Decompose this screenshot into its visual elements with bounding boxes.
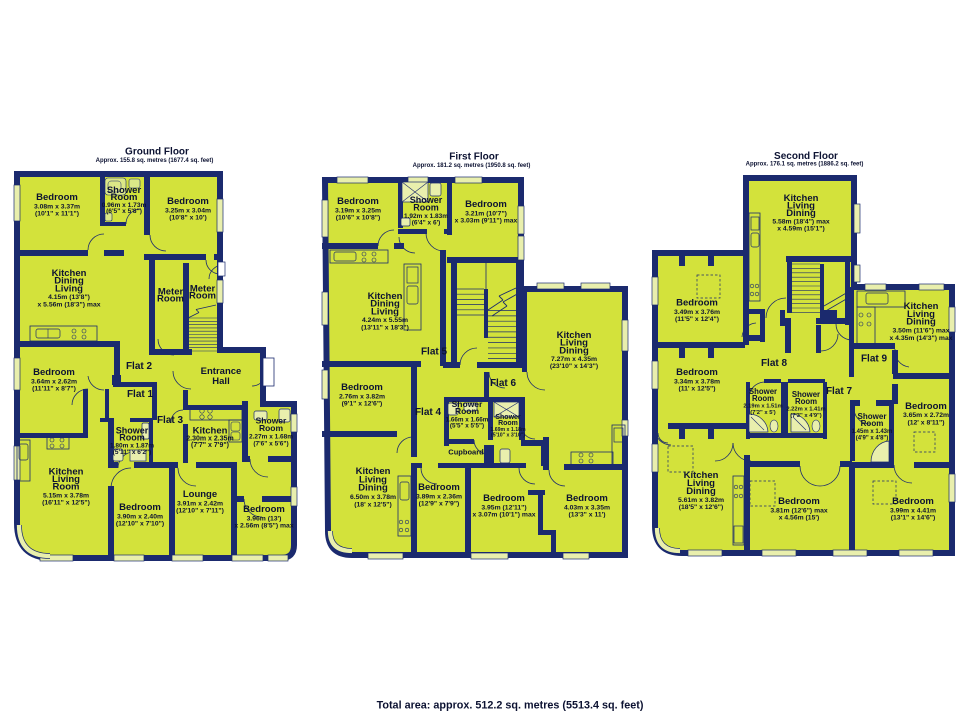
svg-text:Room: Room bbox=[157, 294, 184, 305]
svg-text:1.45m x 1.43m: 1.45m x 1.43m bbox=[852, 429, 893, 435]
svg-text:Room: Room bbox=[498, 420, 518, 427]
svg-text:Flat 7: Flat 7 bbox=[826, 386, 853, 397]
svg-text:(12'10" x 7'10"): (12'10" x 7'10") bbox=[116, 521, 164, 528]
svg-text:3.89m x 2.36m: 3.89m x 2.36m bbox=[416, 493, 462, 500]
svg-text:3.96m (13'): 3.96m (13') bbox=[247, 515, 282, 522]
svg-text:3.91m x 2.42m: 3.91m x 2.42m bbox=[177, 500, 223, 507]
svg-text:(7'6" x 5'6"): (7'6" x 5'6") bbox=[253, 441, 288, 448]
svg-text:Bedroom: Bedroom bbox=[341, 382, 383, 393]
svg-text:(23'10" x 14'3"): (23'10" x 14'3") bbox=[550, 363, 598, 370]
svg-text:(10'6" x 10'8"): (10'6" x 10'8") bbox=[336, 215, 380, 222]
svg-text:(5'5" x 5'5"): (5'5" x 5'5") bbox=[450, 423, 484, 430]
svg-text:3.21m (10'7"): 3.21m (10'7") bbox=[465, 210, 507, 217]
svg-text:Bedroom: Bedroom bbox=[36, 192, 78, 203]
svg-text:Dining: Dining bbox=[906, 317, 936, 328]
svg-text:(11' x 12'5"): (11' x 12'5") bbox=[678, 386, 715, 393]
svg-text:(12' x 8'11"): (12' x 8'11") bbox=[907, 420, 944, 427]
svg-text:Bedroom: Bedroom bbox=[119, 502, 161, 513]
svg-text:Living: Living bbox=[371, 306, 399, 317]
svg-text:Dining: Dining bbox=[358, 483, 388, 494]
svg-text:Total area: approx. 512.2 sq.: Total area: approx. 512.2 sq. metres (55… bbox=[377, 700, 644, 712]
svg-text:4.15m (13'8"): 4.15m (13'8") bbox=[48, 294, 90, 301]
svg-text:Flat 5: Flat 5 bbox=[421, 347, 448, 358]
svg-text:Approx. 181.2 sq. metres (1950: Approx. 181.2 sq. metres (1950.8 sq. fee… bbox=[413, 163, 531, 169]
svg-text:2.22m x 1.41m: 2.22m x 1.41m bbox=[786, 407, 825, 413]
svg-text:Flat 2: Flat 2 bbox=[126, 361, 153, 372]
svg-text:Room: Room bbox=[455, 406, 480, 416]
svg-text:Cupboard: Cupboard bbox=[448, 448, 484, 457]
svg-text:Bedroom: Bedroom bbox=[483, 493, 525, 504]
svg-text:3.99m x 4.41m: 3.99m x 4.41m bbox=[890, 507, 936, 514]
svg-text:3.64m x 2.62m: 3.64m x 2.62m bbox=[31, 378, 77, 385]
svg-text:(10'1" x 11'1"): (10'1" x 11'1") bbox=[35, 211, 79, 218]
svg-text:(12'9" x 7'9"): (12'9" x 7'9") bbox=[419, 501, 460, 508]
svg-text:3.50m (11'6") max: 3.50m (11'6") max bbox=[893, 327, 950, 334]
svg-text:x 2.56m (8'5") max: x 2.56m (8'5") max bbox=[234, 523, 293, 530]
svg-text:Bedroom: Bedroom bbox=[418, 482, 460, 493]
svg-text:(5'11" x 6'2"): (5'11" x 6'2") bbox=[113, 449, 152, 456]
svg-text:Bedroom: Bedroom bbox=[337, 196, 379, 207]
svg-text:(7'3" x 4'9"): (7'3" x 4'9") bbox=[790, 413, 822, 419]
svg-text:Living: Living bbox=[55, 283, 83, 294]
svg-text:(13'3" x 11'): (13'3" x 11') bbox=[568, 512, 605, 519]
svg-text:x 4.59m (15'1"): x 4.59m (15'1") bbox=[777, 226, 825, 233]
svg-text:6.50m x 3.78m: 6.50m x 3.78m bbox=[350, 494, 396, 501]
svg-text:Approx. 176.1 sq. metres (1886: Approx. 176.1 sq. metres (1886.2 sq. fee… bbox=[746, 162, 864, 168]
svg-text:2.76m x 3.82m: 2.76m x 3.82m bbox=[339, 393, 385, 400]
svg-text:3.95m (12'11"): 3.95m (12'11") bbox=[481, 504, 526, 511]
svg-text:(5'10" x 3'10"): (5'10" x 3'10") bbox=[491, 432, 525, 438]
svg-text:(10'8" x 10'): (10'8" x 10') bbox=[169, 215, 206, 222]
svg-text:3.90m x 2.40m: 3.90m x 2.40m bbox=[117, 513, 163, 520]
svg-text:Bedroom: Bedroom bbox=[892, 496, 934, 507]
svg-text:3.08m x 3.37m: 3.08m x 3.37m bbox=[34, 203, 80, 210]
svg-text:x 5.56m (18'3") max: x 5.56m (18'3") max bbox=[37, 301, 100, 308]
svg-text:5.15m x 3.78m: 5.15m x 3.78m bbox=[43, 492, 89, 499]
svg-text:Bedroom: Bedroom bbox=[566, 493, 608, 504]
svg-text:Bedroom: Bedroom bbox=[167, 196, 209, 207]
svg-text:Second Floor: Second Floor bbox=[774, 151, 838, 162]
svg-text:Dining: Dining bbox=[786, 208, 816, 219]
svg-text:Bedroom: Bedroom bbox=[905, 401, 947, 412]
svg-text:Flat 9: Flat 9 bbox=[861, 354, 888, 365]
svg-text:x 3.07m (10'1") max: x 3.07m (10'1") max bbox=[472, 512, 535, 519]
svg-text:(16'11" x 12'5"): (16'11" x 12'5") bbox=[42, 500, 90, 507]
svg-text:(18' x 12'5"): (18' x 12'5") bbox=[354, 502, 391, 509]
svg-text:x 4.56m (15'): x 4.56m (15') bbox=[779, 515, 820, 522]
svg-text:Dining: Dining bbox=[686, 486, 716, 497]
svg-text:(11'5" x 12'4"): (11'5" x 12'4") bbox=[675, 316, 719, 323]
svg-text:(7'2" x 5'): (7'2" x 5') bbox=[750, 410, 776, 416]
svg-text:Lounge: Lounge bbox=[183, 489, 217, 500]
svg-text:Room: Room bbox=[53, 482, 80, 493]
svg-text:(11'11" x 8'7"): (11'11" x 8'7") bbox=[32, 386, 76, 393]
svg-text:(9'1" x 12'6"): (9'1" x 12'6") bbox=[342, 401, 383, 408]
svg-text:(13'1" x 14'6"): (13'1" x 14'6") bbox=[891, 515, 935, 522]
svg-text:(6'4" x 6'): (6'4" x 6') bbox=[412, 220, 441, 227]
svg-text:3.25m x 3.04m: 3.25m x 3.04m bbox=[165, 207, 211, 214]
svg-text:Room: Room bbox=[861, 419, 884, 428]
svg-text:3.34m x 3.78m: 3.34m x 3.78m bbox=[674, 378, 720, 385]
svg-text:Bedroom: Bedroom bbox=[33, 367, 75, 378]
svg-text:5.61m x 3.82m: 5.61m x 3.82m bbox=[678, 497, 724, 504]
svg-text:Dining: Dining bbox=[559, 345, 589, 356]
svg-text:Room: Room bbox=[752, 394, 774, 403]
svg-text:4.24m x 5.55m: 4.24m x 5.55m bbox=[362, 317, 408, 324]
svg-text:Room: Room bbox=[119, 433, 145, 443]
svg-text:(12'10" x 7'11"): (12'10" x 7'11") bbox=[176, 508, 224, 515]
svg-text:Bedroom: Bedroom bbox=[465, 199, 507, 210]
svg-text:Flat 8: Flat 8 bbox=[761, 358, 788, 369]
svg-text:(18'5" x 12'6"): (18'5" x 12'6") bbox=[679, 504, 723, 511]
svg-text:x 4.35m (14'3") max: x 4.35m (14'3") max bbox=[889, 335, 952, 342]
svg-text:Flat 3: Flat 3 bbox=[157, 415, 184, 426]
svg-text:3.81m (12'6") max: 3.81m (12'6") max bbox=[770, 507, 828, 514]
svg-text:Room: Room bbox=[795, 397, 817, 406]
svg-text:Bedroom: Bedroom bbox=[676, 367, 718, 378]
svg-text:3.49m x 3.76m: 3.49m x 3.76m bbox=[674, 309, 720, 316]
svg-text:First Floor: First Floor bbox=[449, 152, 499, 163]
svg-text:(4'9" x 4'8"): (4'9" x 4'8") bbox=[856, 435, 889, 441]
svg-text:Ground Floor: Ground Floor bbox=[125, 147, 189, 158]
svg-text:Approx. 155.8 sq. metres (1677: Approx. 155.8 sq. metres (1677.4 sq. fee… bbox=[96, 158, 214, 164]
svg-text:Room: Room bbox=[413, 203, 439, 213]
svg-text:2.19m x 1.51m: 2.19m x 1.51m bbox=[743, 404, 782, 410]
svg-text:(13'11" x 18'3"): (13'11" x 18'3") bbox=[361, 324, 409, 331]
svg-text:3.19m x 3.25m: 3.19m x 3.25m bbox=[335, 207, 381, 214]
svg-text:Flat 4: Flat 4 bbox=[415, 407, 442, 418]
svg-text:Room: Room bbox=[189, 291, 216, 302]
svg-text:4.03m x 3.35m: 4.03m x 3.35m bbox=[564, 504, 610, 511]
svg-text:Room: Room bbox=[259, 423, 284, 433]
svg-text:Flat 1: Flat 1 bbox=[127, 389, 154, 400]
svg-text:Bedroom: Bedroom bbox=[778, 496, 820, 507]
svg-text:Hall: Hall bbox=[212, 376, 229, 387]
svg-text:x 3.03m (9'11") max: x 3.03m (9'11") max bbox=[455, 218, 518, 225]
svg-text:2.27m x 1.68m: 2.27m x 1.68m bbox=[249, 434, 293, 441]
svg-text:(6'5" x 5'8"): (6'5" x 5'8") bbox=[106, 208, 142, 215]
svg-text:(7'7" x 7'9"): (7'7" x 7'9") bbox=[191, 442, 229, 449]
svg-text:Flat 6: Flat 6 bbox=[490, 378, 517, 389]
svg-text:5.58m (18'4") max: 5.58m (18'4") max bbox=[772, 219, 830, 226]
svg-text:Bedroom: Bedroom bbox=[243, 504, 285, 515]
svg-text:3.65m x 2.72m: 3.65m x 2.72m bbox=[903, 412, 949, 419]
svg-text:Bedroom: Bedroom bbox=[676, 298, 718, 309]
